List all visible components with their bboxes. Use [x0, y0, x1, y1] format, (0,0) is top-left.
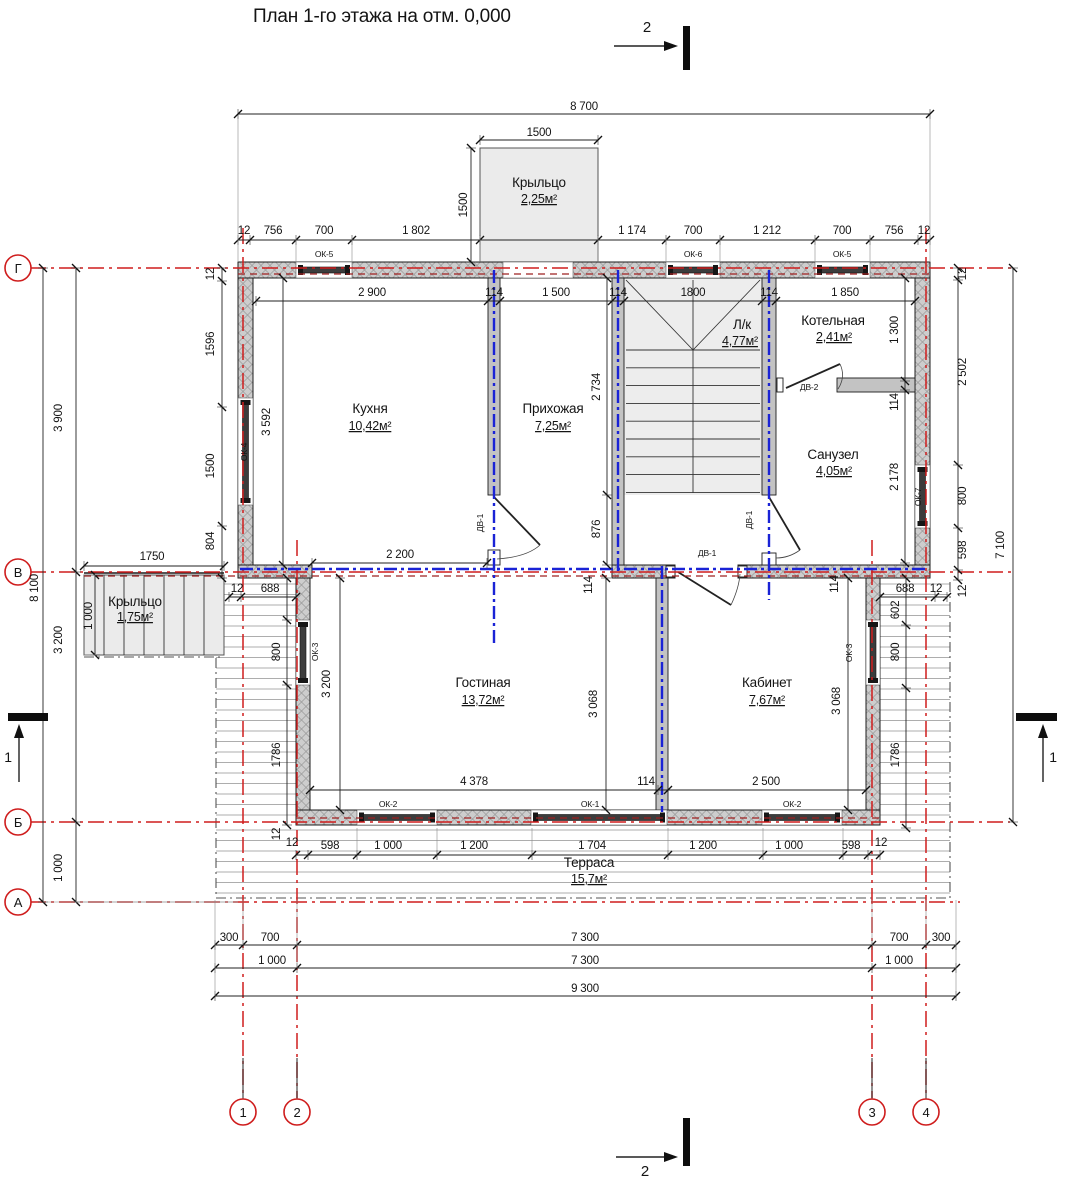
room-name: Санузел — [807, 447, 858, 462]
dimension-label: 114 — [829, 574, 841, 593]
dimension-label: 1 300 — [889, 316, 901, 344]
axis-number: 4 — [922, 1105, 929, 1120]
room-area: 4,05м² — [816, 464, 852, 478]
dimension-label: 1 000 — [83, 602, 95, 630]
axis-number: 2 — [293, 1105, 300, 1120]
axis-bubbles — [5, 255, 939, 1125]
room-area: 15,7м² — [571, 872, 607, 886]
dimension-label: 114 — [485, 287, 504, 299]
room-name: Гостиная — [455, 675, 510, 690]
dimension-label: 2 200 — [386, 549, 414, 561]
room-name: Л/к — [733, 317, 751, 332]
dimension-label: 1 000 — [775, 840, 803, 852]
room-name: Кабинет — [742, 675, 792, 690]
dimension-label: 114 — [889, 392, 901, 411]
door-label: ДВ-1 — [475, 513, 485, 532]
window-label: ОК-2 — [783, 799, 802, 809]
dimension-label: 1 000 — [885, 955, 913, 967]
dimension-label: 876 — [591, 520, 603, 539]
dimension-label: 700 — [890, 932, 909, 944]
dimension-label: 700 — [684, 225, 703, 237]
window-label: ОК-2 — [379, 799, 398, 809]
section-label: 2 — [643, 19, 651, 36]
dimension-label: 8 100 — [29, 574, 41, 602]
dimension-label: 12 — [286, 837, 298, 849]
dimension-label: 1750 — [140, 551, 165, 563]
floor-plan-canvas: План 1-го этажа на отм. 0,000 22118 7001… — [0, 0, 1074, 1181]
axis-number: 3 — [868, 1105, 875, 1120]
dimension-label: 688 — [261, 583, 280, 595]
dimension-label: 3 068 — [588, 690, 600, 718]
dimension-label: 12 — [930, 583, 942, 595]
room-area: 10,42м² — [349, 419, 392, 433]
dimension-label: 1 000 — [374, 840, 402, 852]
door-label: ДВ-1 — [744, 510, 754, 529]
dimension-label: 1 174 — [618, 225, 647, 237]
dimension-label: 12 — [918, 225, 930, 237]
window-label: ОК-5 — [833, 249, 852, 259]
dimension-label: 2 502 — [957, 358, 969, 386]
room-area: 7,25м² — [535, 419, 571, 433]
room-area: 2,25м² — [521, 192, 557, 206]
dimension-label: 688 — [896, 583, 915, 595]
dimension-label: 12 — [231, 583, 243, 595]
dimension-label: 9 300 — [571, 983, 599, 995]
dimension-label: 114 — [637, 776, 656, 788]
dimension-label: 800 — [271, 643, 283, 662]
dimension-label: 12 — [238, 225, 250, 237]
axis-letter: Б — [14, 815, 22, 830]
dimension-label: 1 500 — [542, 287, 570, 299]
room-area: 13,72м² — [462, 693, 505, 707]
dimension-label: 12 — [205, 268, 217, 280]
dimension-label: 3 592 — [261, 408, 273, 436]
dimension-label: 12 — [875, 837, 887, 849]
dimension-label: 1 850 — [831, 287, 859, 299]
dimension-label: 2 900 — [358, 287, 386, 299]
room-area: 1,75м² — [117, 610, 153, 624]
dimension-label: 2 734 — [591, 372, 603, 401]
dimension-label: 1500 — [527, 127, 552, 139]
dimension-label: 8 700 — [570, 101, 598, 113]
dimension-label: 1800 — [681, 287, 706, 299]
dimension-label: 114 — [609, 287, 628, 299]
dimension-label: 1 200 — [460, 840, 488, 852]
room-name: Крыльцо — [108, 594, 162, 609]
dimension-label: 2 178 — [889, 463, 901, 491]
window-label: ОК-3 — [310, 642, 320, 661]
dimension-label: 1 704 — [578, 840, 607, 852]
dimension-label: 1596 — [205, 332, 217, 357]
dimension-label: 1 802 — [402, 225, 430, 237]
dimension-label: 114 — [583, 575, 595, 594]
dimension-label: 300 — [932, 932, 951, 944]
door-label: ДВ-1 — [698, 548, 717, 558]
dimension-label: 3 068 — [831, 687, 843, 715]
room-name: Кухня — [352, 401, 387, 416]
windows — [238, 262, 930, 825]
window-label: ОК-5 — [315, 249, 334, 259]
porches — [84, 148, 598, 657]
dimension-label: 700 — [315, 225, 334, 237]
dimension-label: 3 200 — [321, 670, 333, 698]
dimension-label: 598 — [957, 541, 969, 560]
dimension-label: 800 — [890, 643, 902, 662]
window-label: ОК-7 — [913, 487, 923, 506]
axis-letter: А — [14, 895, 23, 910]
dimension-label: 300 — [220, 932, 239, 944]
dimension-label: 1500 — [205, 454, 217, 479]
dimension-label: 804 — [205, 531, 217, 550]
axis-letter: Г — [15, 261, 22, 276]
dimension-label: 1 200 — [689, 840, 717, 852]
dimension-label: 12 — [271, 828, 283, 840]
section-label: 2 — [641, 1163, 649, 1180]
dimension-label: 7 300 — [571, 932, 599, 944]
dimension-label: 12 — [957, 268, 969, 280]
drawing-title: План 1-го этажа на отм. 0,000 — [253, 6, 511, 27]
dimension-label: 1786 — [271, 743, 283, 768]
section-label: 1 — [1049, 749, 1057, 765]
dimension-label: 756 — [264, 225, 283, 237]
door-label: ДВ-2 — [800, 382, 819, 392]
dimension-label: 1 000 — [258, 955, 286, 967]
dimension-label: 1500 — [458, 193, 470, 218]
walls — [238, 262, 930, 825]
staircase — [624, 278, 762, 495]
room-name: Терраса — [564, 855, 615, 870]
room-name: Котельная — [801, 313, 865, 328]
dimension-label: 3 900 — [53, 404, 65, 432]
room-area: 7,67м² — [749, 693, 785, 707]
dimension-label: 1786 — [890, 743, 902, 768]
room-area: 4,77м² — [722, 334, 758, 348]
dimension-label: 700 — [833, 225, 852, 237]
dimension-label: 756 — [885, 225, 904, 237]
dimension-label: 1 212 — [753, 225, 781, 237]
floor-plan-drawing: План 1-го этажа на отм. 0,000 22118 7001… — [0, 0, 1074, 1181]
dimension-label: 114 — [760, 287, 779, 299]
dimension-label: 12 — [957, 585, 969, 597]
room-area: 2,41м² — [816, 330, 852, 344]
dimension-label: 602 — [890, 601, 902, 620]
window-label: ОК-3 — [844, 643, 854, 662]
window-label: ОК-4 — [239, 442, 249, 461]
axis-number: 1 — [239, 1105, 246, 1120]
dimension-label: 700 — [261, 932, 280, 944]
dimension-label: 3 200 — [53, 626, 65, 654]
window-label: ОК-1 — [581, 799, 600, 809]
dimension-label: 800 — [957, 487, 969, 506]
dimension-label: 7 300 — [571, 955, 599, 967]
dimension-label: 2 500 — [752, 776, 780, 788]
window-label: ОК-6 — [684, 249, 703, 259]
dimension-label: 598 — [321, 840, 340, 852]
section-label: 1 — [4, 749, 12, 765]
dimension-label: 7 100 — [995, 531, 1007, 559]
dimension-label: 1 000 — [53, 854, 65, 882]
axis-letter: В — [14, 565, 22, 580]
room-name: Прихожая — [523, 401, 584, 416]
dimension-label: 598 — [842, 840, 861, 852]
room-name: Крыльцо — [512, 175, 566, 190]
dimension-label: 4 378 — [460, 776, 488, 788]
